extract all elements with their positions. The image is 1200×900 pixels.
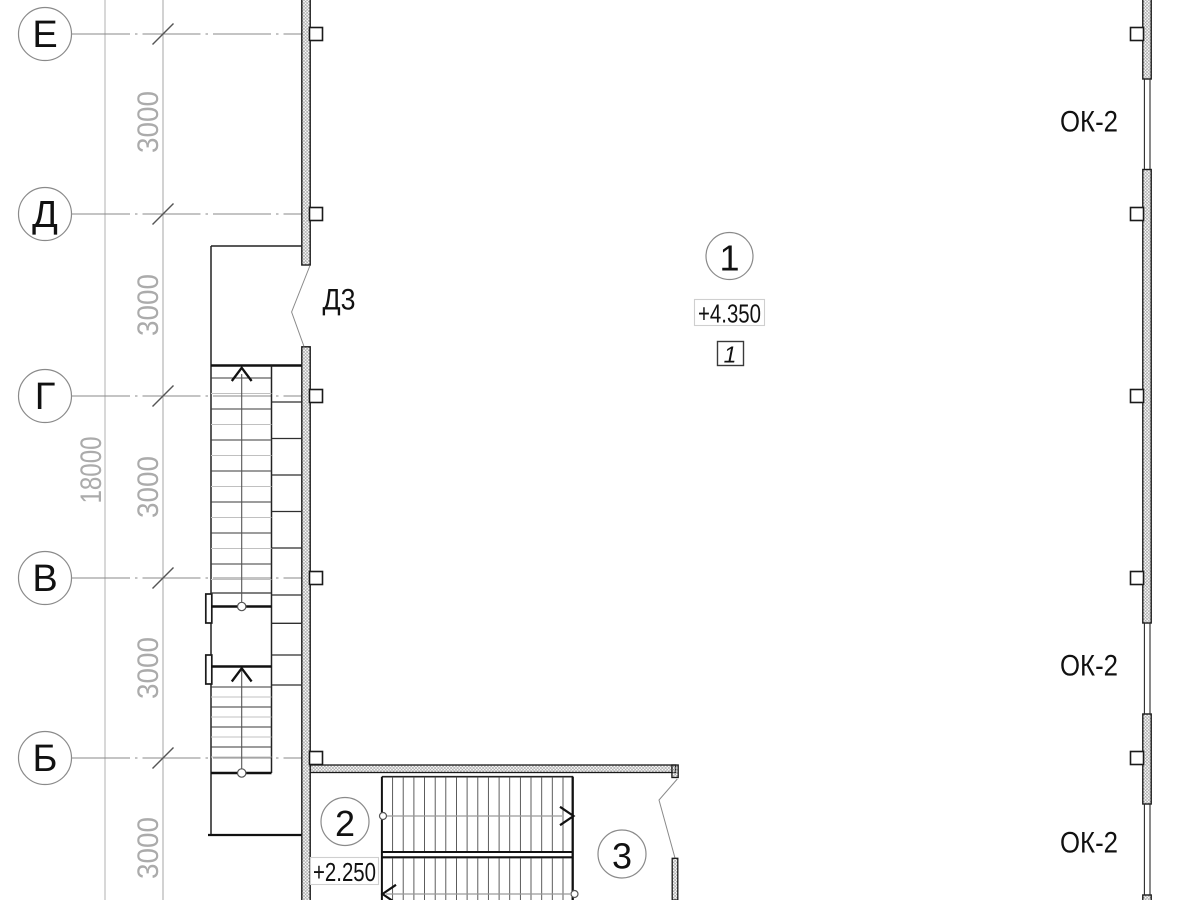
level-value: +4.350: [698, 299, 761, 329]
axis-label: Е: [32, 14, 57, 56]
floor-plan-drawing: Е Д Г В Б 3000: [0, 0, 1200, 900]
axis-row-g: Г: [19, 370, 302, 423]
marker-number: 2: [335, 803, 355, 844]
wall-tick: [1131, 208, 1144, 221]
axis-label: В: [32, 558, 57, 600]
dim-segment-label: 3000: [132, 637, 165, 699]
door-jamb-wall: [672, 858, 678, 900]
dim-segment-label: 3000: [132, 817, 165, 879]
node-marker-2: 2: [321, 798, 369, 846]
axis-label: Д: [32, 194, 58, 236]
stair-upper-flight: [211, 366, 302, 778]
window-label: ОК-2: [1060, 650, 1118, 683]
dim-segment-label: 3000: [132, 456, 165, 518]
door-leaf: [659, 779, 677, 858]
door-label: Д3: [323, 284, 356, 317]
travel-arrow-left-icon: [383, 885, 397, 900]
door-jamb: [206, 594, 212, 623]
axis-row-v: В: [19, 552, 302, 605]
drawing-canvas: Е Д Г В Б 3000: [0, 0, 1200, 900]
wall-tick: [310, 572, 323, 585]
stair-side-flight: [272, 402, 302, 685]
wall-tick: [1131, 390, 1144, 403]
wall-tick: [310, 208, 323, 221]
travel-start-circle: [380, 813, 387, 820]
window-label: ОК-2: [1060, 106, 1118, 139]
wall-end-cap: [672, 765, 678, 778]
dim-segment-label: 3000: [132, 274, 165, 336]
right-wall: ОК-2 ОК-2 ОК-2: [1060, 0, 1151, 900]
level-mark-upper: +4.350: [695, 299, 765, 329]
marker-number: 1: [719, 238, 739, 279]
marker-number: 3: [612, 836, 632, 877]
door-d3: Д3: [292, 266, 356, 347]
door-leaf: [292, 266, 310, 347]
dim-overall-label: 18000: [75, 437, 108, 504]
axis-row-e: Е: [19, 8, 302, 61]
wall-tick: [310, 390, 323, 403]
dimension-grid: Е Д Г В Б 3000: [19, 0, 302, 900]
stair-treads: [393, 777, 563, 851]
wall-pier: [1143, 895, 1151, 900]
wall-tick: [1131, 28, 1144, 41]
wall-segment: [302, 347, 310, 900]
axis-label: Г: [35, 376, 56, 418]
detail-number: 1: [724, 342, 737, 368]
travel-start-circle: [238, 602, 246, 610]
axis-row-d: Д: [19, 188, 302, 241]
wall-tick: [1131, 572, 1144, 585]
dim-segment-label: 3000: [132, 91, 165, 153]
travel-start-circle: [571, 891, 578, 898]
wall-tick: [310, 28, 323, 41]
wall-tick: [310, 752, 323, 765]
travel-start-circle: [238, 769, 246, 777]
level-value: +2.250: [313, 857, 376, 887]
node-marker-1: 1: [706, 233, 753, 280]
wall-tick: [1131, 752, 1144, 765]
window-label: ОК-2: [1060, 827, 1118, 860]
level-mark-lower: +2.250: [311, 857, 379, 887]
stair-lower-flight: [380, 777, 579, 900]
wall-segment: [310, 765, 675, 773]
door-jamb: [206, 655, 212, 684]
detail-marker: 1: [718, 342, 744, 368]
travel-arrow-right-icon: [560, 807, 574, 825]
axis-label: Б: [33, 738, 58, 780]
node-marker-3: 3: [598, 830, 646, 878]
axis-row-b: Б: [19, 732, 302, 785]
